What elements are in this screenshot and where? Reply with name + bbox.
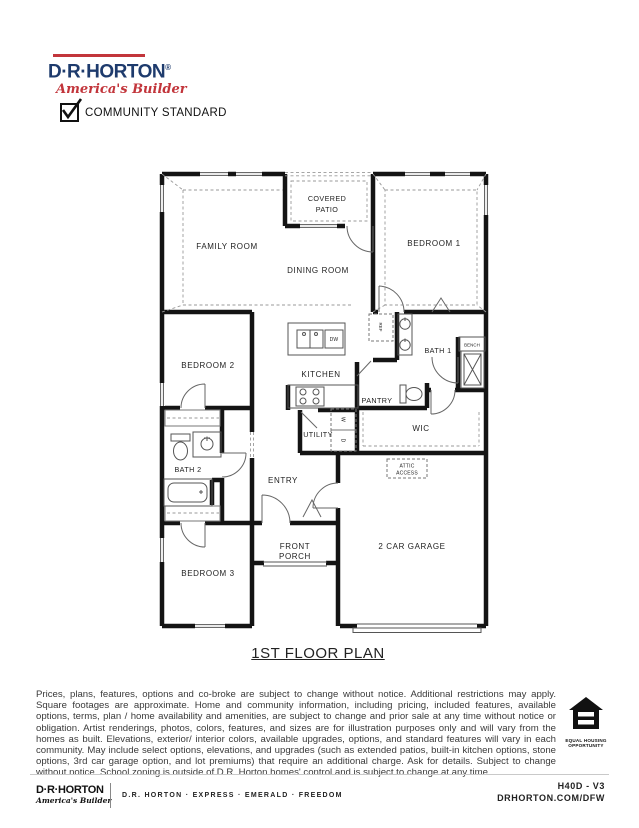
label-utility: UTILITY <box>303 430 333 439</box>
footer-vertical-divider <box>110 783 111 808</box>
disclaimer-text: Prices, plans, features, options and co-… <box>36 689 556 779</box>
community-standard-checkbox[interactable] <box>60 103 79 122</box>
label-pantry: PANTRY <box>362 396 393 405</box>
label-bedroom-3: BEDROOM 3 <box>181 569 234 578</box>
label-family-room: FAMILY ROOM <box>196 242 257 251</box>
label-bath-1: BATH 1 <box>424 346 451 355</box>
label-washer: W <box>340 417 346 422</box>
footer-logo-tagline: America's Builder <box>36 796 100 805</box>
footer-logo-name: D·R·HORTON <box>36 784 100 796</box>
label-covered-patio-2: PATIO <box>316 205 339 214</box>
label-bath-2: BATH 2 <box>174 465 201 474</box>
label-bedroom-2: BEDROOM 2 <box>181 361 234 370</box>
logo-name-text: D·R·HORTON <box>48 61 165 82</box>
label-front-porch-1: FRONT <box>280 542 311 551</box>
label-garage: 2 CAR GARAGE <box>378 542 445 551</box>
drhorton-logo: D·R·HORTON® America's Builder <box>48 54 158 97</box>
equal-housing-text-2: OPPORTUNITY <box>562 743 610 748</box>
website-url[interactable]: DRHORTON.COM/DFW <box>497 793 605 805</box>
label-wic: WIC <box>412 424 429 433</box>
plan-code: H40D - V3 <box>497 781 605 793</box>
label-attic-2: ACCESS <box>396 471 418 477</box>
label-entry: ENTRY <box>268 476 298 485</box>
equal-housing-logo: EQUAL HOUSING OPPORTUNITY <box>562 697 610 749</box>
logo-tagline: America's Builder <box>56 82 158 97</box>
flyer-page: D·R·HORTON® America's Builder COMMUNITY … <box>0 0 639 828</box>
footer-logo: D·R·HORTON America's Builder <box>36 784 100 805</box>
bath1-fixtures <box>398 314 422 403</box>
porch-steps <box>263 562 327 566</box>
kitchen-counter-range <box>288 385 358 408</box>
community-standard-label: COMMUNITY STANDARD <box>85 107 227 119</box>
label-front-porch-2: PORCH <box>279 552 311 561</box>
label-ref: REF <box>378 322 383 331</box>
shower <box>461 351 484 388</box>
floor-plan-drawing: COVERED PATIO FAMILY ROOM DINING ROOM BE… <box>150 160 505 645</box>
footer-right-block: H40D - V3 DRHORTON.COM/DFW <box>497 781 605 804</box>
label-bedroom-1: BEDROOM 1 <box>407 239 460 248</box>
floor-plan-title: 1ST FLOOR PLAN <box>228 645 408 662</box>
community-standard-row: COMMUNITY STANDARD <box>60 103 227 122</box>
footer-brands: D.R. HORTON · EXPRESS · EMERALD · FREEDO… <box>122 792 343 799</box>
label-dw: DW <box>330 337 339 343</box>
washer-dryer <box>331 409 356 451</box>
logo-name: D·R·HORTON® <box>48 57 158 82</box>
label-dining-room: DINING ROOM <box>287 266 349 275</box>
label-bench: BENCH <box>464 343 480 348</box>
logo-registered-mark: ® <box>165 63 170 72</box>
label-attic-1: ATTIC <box>399 464 414 470</box>
label-dryer: D <box>340 439 346 443</box>
label-covered-patio-1: COVERED <box>308 194 346 203</box>
checkmark-icon <box>60 97 84 121</box>
footer-divider <box>30 774 609 775</box>
label-kitchen: KITCHEN <box>301 370 340 379</box>
equal-housing-house-icon <box>566 697 606 733</box>
garage-door <box>353 624 481 633</box>
